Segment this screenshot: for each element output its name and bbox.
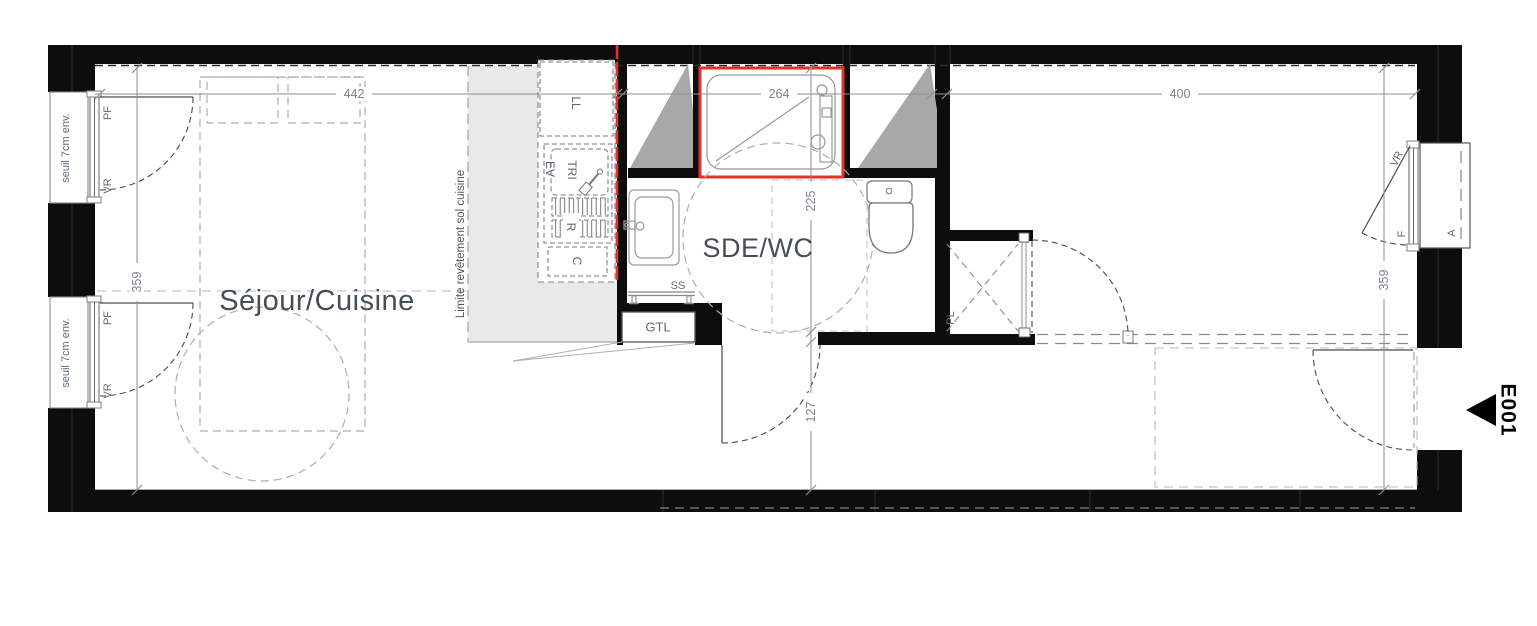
washbasin [624,190,679,265]
toilet [867,172,913,253]
closet-label: PL [945,311,957,324]
room-label-sde: SDE/WC [703,233,814,263]
pf-label-top: PF [102,106,114,120]
seuil-label-top: seuil 7cm env. [60,113,72,183]
right-window-vr-label: VR [1388,149,1406,168]
dim-sejour-width: 442 [344,87,365,101]
towel-rail-label: SS [671,280,686,292]
dim-hall-depth: 127 [804,402,818,423]
towel-rail [628,292,695,304]
seuil-label-bottom: seuil 7cm env. [60,318,72,388]
turning-circle-sejour [175,307,349,481]
fridge-label: R [564,223,578,232]
gtl-label: GTL [645,320,670,335]
kitchen-floor-limit-note: Limite revêtement sol cuisine [455,170,467,318]
shower [700,68,843,177]
floor-plan-page: seuil 7cm env. PF VR seuil 7cm env. PF V… [0,0,1537,626]
sorting-label: TRI [565,160,579,179]
entrance-code-label: E001 [1497,383,1520,436]
sink-label: EV [543,161,557,177]
vr-label-bottom: VR [102,383,114,398]
partition-and-bed [1032,240,1417,487]
railing-a-label: A [1446,229,1458,237]
right-window-f-label: F [1396,230,1408,237]
dim-sde-depth: 225 [804,191,818,212]
dim-right-depth: 359 [1377,270,1391,291]
railing-box [1420,143,1470,248]
washer-label: LL [569,96,583,110]
right-window: VR F A [1362,141,1470,251]
bed-outline [1155,348,1417,487]
entrance-door-swing [1313,350,1413,450]
dim-sde-width: 264 [769,87,790,101]
vr-label-top: VR [102,178,114,193]
room-label-sejour: Séjour/Cuisine [219,285,415,317]
closet: PL [945,233,1030,337]
window-top: seuil 7cm env. PF VR [50,91,193,203]
drainboard [552,198,608,216]
cooktop-label: C [570,257,584,266]
duct-shaft-left [630,64,693,168]
entrance-door: E001 [1313,350,1520,450]
dim-left-depth: 359 [130,272,144,293]
partition-door-swing [1032,240,1128,336]
pf-label-bottom: PF [102,311,114,325]
dim-right-width: 400 [1170,87,1191,101]
entrance-arrow-icon [1466,394,1496,426]
sejour-furniture [97,77,468,481]
floor-plan-svg: seuil 7cm env. PF VR seuil 7cm env. PF V… [0,0,1537,626]
duct-shaft-right [858,64,937,168]
window-bottom: seuil 7cm env. PF VR [50,296,193,408]
